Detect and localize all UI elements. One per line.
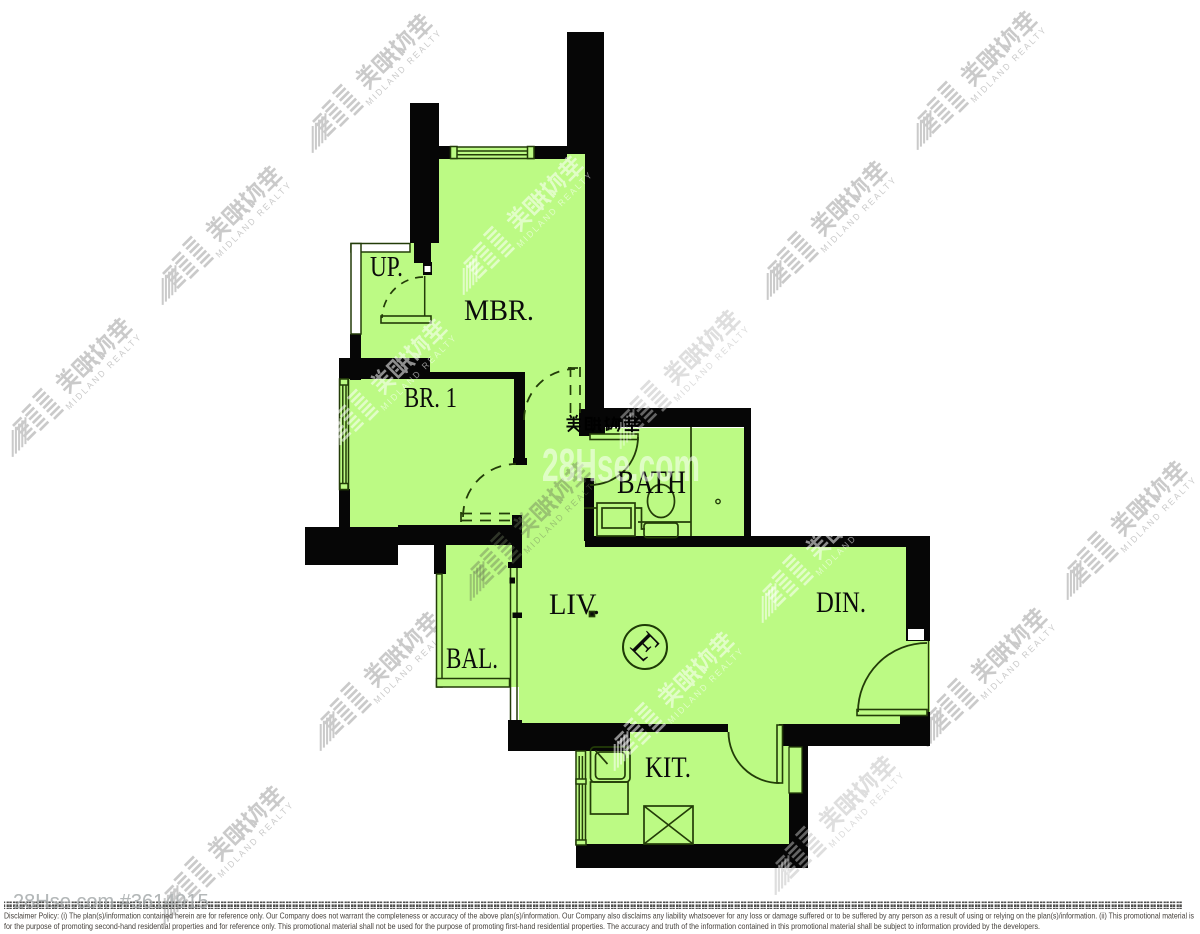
svg-text:DIN.: DIN. — [816, 586, 866, 619]
svg-text:MBR.: MBR. — [464, 294, 534, 327]
svg-text:28Hse.com: 28Hse.com — [542, 439, 700, 491]
svg-text:KIT.: KIT. — [645, 751, 691, 784]
svg-text:Disclaimer Policy: (i) The pla: Disclaimer Policy: (i) The plan(s)/infor… — [4, 912, 1194, 921]
svg-text:LIV.: LIV. — [549, 588, 600, 621]
svg-text:BR. 1: BR. 1 — [404, 382, 457, 414]
svg-text:BAL.: BAL. — [446, 642, 498, 675]
svg-text:UP.: UP. — [370, 252, 403, 283]
svg-text:for the purpose of promoting s: for the purpose of promoting second-hand… — [4, 922, 1040, 931]
svg-text:28Hse.com #3614915: 28Hse.com #3614915 — [13, 891, 209, 913]
